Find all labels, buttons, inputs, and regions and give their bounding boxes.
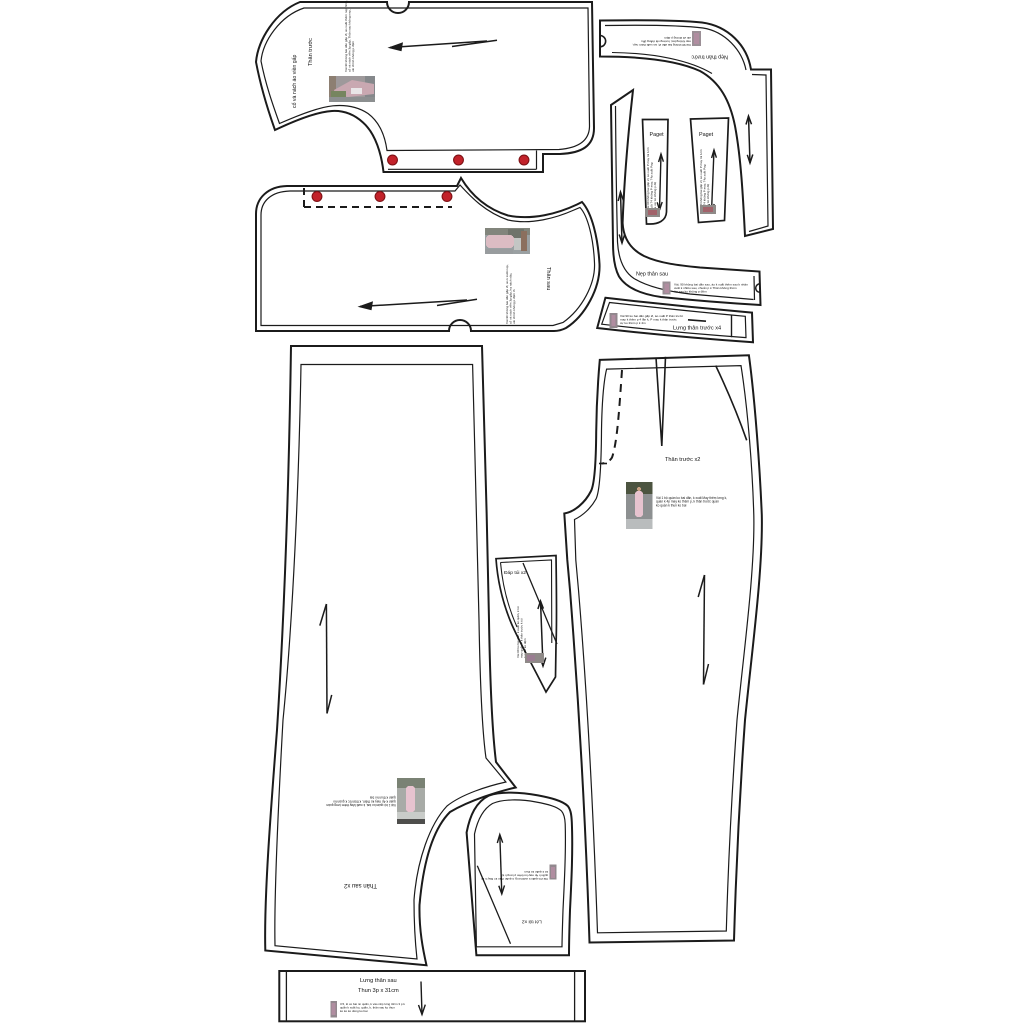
svg-text:ko k quần ko thun: ko k quần ko thun: [524, 870, 548, 874]
svg-text:Thun 3p x 31cm: Thun 3p x 31cm: [358, 988, 399, 994]
svg-text:Lưng thân trước x4: Lưng thân trước x4: [673, 326, 721, 332]
svg-text:Paget: Paget: [699, 132, 714, 138]
svg-text:Nẹp thân trước: Nẹp thân trước: [691, 54, 728, 60]
svg-text:Đáp túi x2: Đáp túi x2: [504, 570, 526, 576]
svg-text:Thân trước x2: Thân trước x2: [665, 457, 700, 463]
svg-text:vải về không p đệm: vải về không p đệm: [664, 36, 691, 40]
svg-text:Lưng thân sau: Lưng thân sau: [360, 978, 397, 984]
svg-text:pa ver ko không p đệ: pa ver ko không p đệ: [653, 182, 657, 210]
svg-text:Nẹp thân sau: Nẹp thân sau: [636, 272, 668, 278]
svg-text:ko ko ko dùng ko bai: ko ko ko dùng ko bai: [340, 1009, 368, 1013]
svg-text:quần k thun ko bai: quần k thun ko bai: [370, 796, 396, 800]
svg-text:vải chính không p đệm: vải chính không p đệm: [351, 40, 355, 72]
svg-text:vải chính không p đệm th: vải chính không p đệm th: [512, 289, 516, 324]
svg-text:cổ và nách áo viền gấp: cổ và nách áo viền gấp: [291, 55, 298, 108]
svg-text:ko quần k thun ko bai: ko quần k thun ko bai: [656, 503, 687, 507]
svg-text:Thân sau: Thân sau: [545, 267, 551, 290]
svg-text:kịp sau ko không p đệm: kịp sau ko không p đệm: [674, 290, 707, 294]
svg-text:Lót túi x2: Lót túi x2: [522, 919, 542, 925]
svg-text:Thân sau x2: Thân sau x2: [343, 882, 377, 888]
svg-text:Thân trước: Thân trước: [308, 38, 314, 66]
svg-text:Paget: Paget: [650, 132, 665, 138]
svg-text:cự ko thêm p k 4m: cự ko thêm p k 4m: [620, 321, 646, 325]
